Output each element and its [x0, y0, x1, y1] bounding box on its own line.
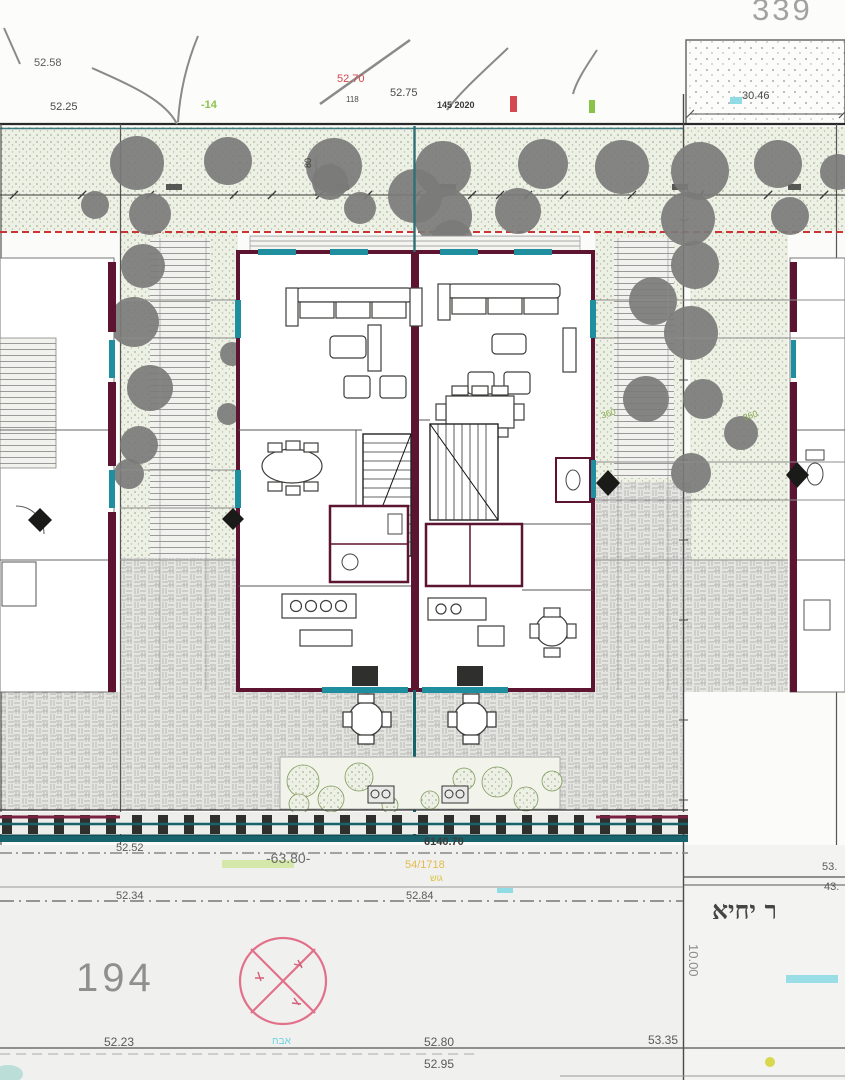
- site-plan-page: 33952.5852.2552.7011852.75145 2020-1430.…: [0, 0, 845, 1080]
- left-neighbour-unit: [0, 258, 116, 692]
- street-fence: [0, 810, 688, 842]
- green-text-smudge: [222, 860, 294, 868]
- cyan-tick: [730, 97, 742, 104]
- cyan-text-smudge: [497, 888, 513, 893]
- yellow-dot: [765, 1057, 775, 1067]
- right-neighbour-unit: [786, 258, 845, 692]
- side-path-right: [614, 238, 674, 478]
- street-sub-label-smudge: [786, 975, 838, 983]
- site-plan-drawing: [0, 0, 845, 1080]
- north-parcel-area: [686, 40, 845, 124]
- green-tick: [589, 100, 595, 113]
- red-tick: [510, 96, 517, 112]
- stairs-right-unit: [430, 424, 498, 520]
